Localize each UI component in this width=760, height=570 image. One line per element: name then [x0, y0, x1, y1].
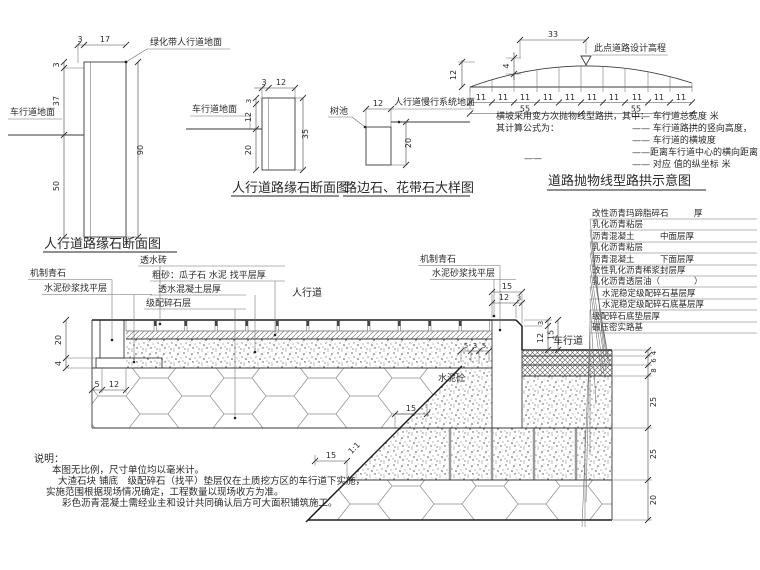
dim-c-t: 12 [373, 99, 383, 108]
svg-text:沥青混凝土 下面层厚: 沥青混凝土 下面层厚 [592, 254, 695, 265]
cement-stabilized-base [522, 376, 612, 428]
svg-text:11: 11 [498, 93, 508, 102]
note-line-2: 大渣石块 铺底 级配碎石（找平）垫层仅在土质挖方区的车行道下实施， [58, 475, 365, 487]
note-line-1: 本图无比例，尺寸单位均以毫米计。 [52, 464, 204, 476]
dim-curb-15: 15 [502, 282, 512, 291]
svg-text:25: 25 [649, 397, 658, 407]
notes-heading: 说明： [34, 452, 64, 465]
svg-text:8: 8 [650, 368, 658, 372]
dim-m-5: 5 [94, 380, 99, 389]
figA-ground-top-label: 绿化带人行道地面 [150, 36, 222, 48]
figD-apex-label: 此点道路设计高程 [594, 42, 666, 54]
dim-m-20: 20 [54, 335, 63, 345]
svg-text:——距离车行道中心的横向距离: ——距离车行道中心的横向距离 [632, 146, 758, 158]
figC-tree-pit-label: 树池 [330, 105, 348, 117]
svg-text:沥青混凝土 中面层厚: 沥青混凝土 中面层厚 [592, 231, 695, 242]
note-line-4: 彩色沥青混凝土需经业主和设计共同确认后方可大面积铺筑施工。 [62, 497, 338, 509]
svg-text:乳化沥青粘层: 乳化沥青粘层 [592, 242, 643, 253]
dim-a-l2: 37 [52, 96, 61, 106]
svg-text:20: 20 [649, 495, 658, 505]
graded-gravel-layer [92, 368, 460, 428]
leader-dot [125, 61, 128, 64]
label-mortar-leveling-curb: 水泥砂浆找平层 [432, 267, 495, 279]
dim-b-l2: 12 [244, 112, 253, 122]
svg-text:11: 11 [632, 93, 642, 102]
dim-a-r: 90 [136, 145, 145, 155]
svg-text:改性乳化沥青稀浆封层厚: 改性乳化沥青稀浆封层厚 [592, 265, 686, 276]
label-sidewalk: 人行道 [292, 286, 322, 299]
svg-text:6: 6 [650, 358, 658, 363]
svg-text:11: 11 [609, 93, 619, 102]
svg-text:11: 11 [676, 93, 686, 102]
label-mortar-leveling-left: 水泥砂浆找平层 [44, 282, 107, 294]
dim-m-4: 4 [54, 361, 63, 366]
figD-text-left1: 横坡采用变方次抛物线型路拱，其中： [496, 110, 649, 122]
dim-s5b: 5 [482, 342, 486, 350]
asphalt-middle-course [522, 357, 612, 366]
label-coarse-sand: 粗砂：瓜子石 水泥 找平层厚 [152, 269, 266, 281]
label-cement-concrete: 水泥砼 [438, 372, 465, 384]
svg-text:—— 车行道路拱的竖向高度，: —— 车行道路拱的竖向高度， [632, 122, 752, 134]
dim-d-4: 4 [502, 63, 511, 68]
figD-formula-dash: —— [524, 154, 542, 164]
dim-a-l3: 50 [52, 181, 61, 191]
svg-text:11: 11 [565, 93, 575, 102]
dim-b-l1: 3 [245, 99, 253, 103]
dim-a-t2: 17 [100, 35, 110, 44]
note-line-3: 实施范围根据现场情况确定，工程数量以现场收方为准。 [46, 486, 284, 498]
dim-step-15b: 15 [326, 451, 336, 460]
dim-b-l3: 20 [244, 145, 253, 155]
dim-s3: 3 [473, 342, 477, 350]
svg-text:—— 对应 值的纵坐标 米: —— 对应 值的纵坐标 米 [632, 158, 731, 170]
dim-reveal-3: 3 [537, 321, 545, 325]
svg-text:—— 车行道总宽度 米: —— 车行道总宽度 米 [632, 110, 719, 122]
svg-text:水泥稳定级配碎石基层厚: 水泥稳定级配碎石基层厚 [602, 288, 696, 299]
label-machined-bluestone-curb: 机制青石 [420, 253, 456, 265]
dim-d-33: 33 [548, 30, 558, 39]
dim-reveal-15: 15 [547, 330, 556, 340]
dim-step-15a: 15 [406, 404, 416, 413]
label-graded-gravel: 级配碎石层 [146, 297, 191, 309]
dim-m-12: 12 [109, 380, 119, 389]
asphalt-bottom-course [522, 366, 612, 377]
svg-text:乳化沥青粘层: 乳化沥青粘层 [592, 219, 643, 230]
leveling-sand-layer [126, 332, 492, 340]
svg-text:11: 11 [543, 93, 553, 102]
dim-b-t1: 3 [261, 78, 266, 87]
svg-text:级配碎石底垫层厚: 级配碎石底垫层厚 [592, 311, 661, 322]
dim-s5a: 5 [464, 342, 468, 350]
dim-a-t1: 3 [77, 35, 82, 44]
label-permeable-brick: 透水砖 [140, 254, 167, 266]
permeable-concrete-layer [126, 339, 492, 368]
svg-text:11: 11 [520, 93, 530, 102]
dim-b-r: 35 [301, 129, 310, 139]
svg-text:25: 25 [649, 449, 658, 459]
cad-drawing-sheet: 3 17 3 37 50 90 车行道地面 绿化带人行道地面 人行道路缘石断面图… [0, 0, 760, 570]
dim-curb-12: 12 [499, 293, 509, 302]
dim-a-l1: 3 [52, 62, 61, 67]
dim-reveal-12: 12 [536, 333, 545, 343]
figA-ground-left-label: 车行道地面 [10, 106, 55, 118]
figB-title: 人行道路缘石断面图 [232, 180, 349, 196]
svg-text:11: 11 [476, 93, 486, 102]
dim-b-t2: 12 [276, 78, 286, 87]
svg-text:—— 车行道的横坡度: —— 车行道的横坡度 [632, 134, 716, 146]
drawing-canvas: 3 17 3 37 50 90 车行道地面 绿化带人行道地面 人行道路缘石断面图… [0, 0, 760, 570]
figA-title: 人行道路缘石断面图 [44, 236, 161, 252]
label-roadway: 车行道 [553, 334, 583, 347]
svg-text:水泥稳定级配碎石底基层厚: 水泥稳定级配碎石底基层厚 [602, 299, 705, 310]
svg-text:4: 4 [650, 350, 658, 355]
dim-d-12: 12 [449, 70, 458, 80]
dim-curb-3: 3 [517, 295, 521, 303]
figB-ground-left-label: 车行道地面 [192, 103, 237, 115]
figD-text-left2: 其计算公式为： [496, 122, 559, 134]
figD-title: 道路抛物线型路拱示意图 [548, 173, 691, 189]
svg-text:11: 11 [587, 93, 597, 102]
svg-text:乳化沥青透层油（ ）: 乳化沥青透层油（ ） [592, 276, 703, 287]
label-permeable-concrete: 透水混凝土层厚 [158, 283, 221, 295]
svg-text:改性沥青玛蹄脂碎石 厚: 改性沥青玛蹄脂碎石 厚 [592, 208, 703, 219]
dim-c-r: 20 [404, 138, 413, 148]
figC-ground-right-label: 人行道慢行系统地面 [394, 96, 475, 108]
figC-title: 路边石、花带石大样图 [344, 180, 474, 196]
label-machined-bluestone-left: 机制青石 [30, 267, 66, 279]
svg-text:11: 11 [654, 93, 664, 102]
